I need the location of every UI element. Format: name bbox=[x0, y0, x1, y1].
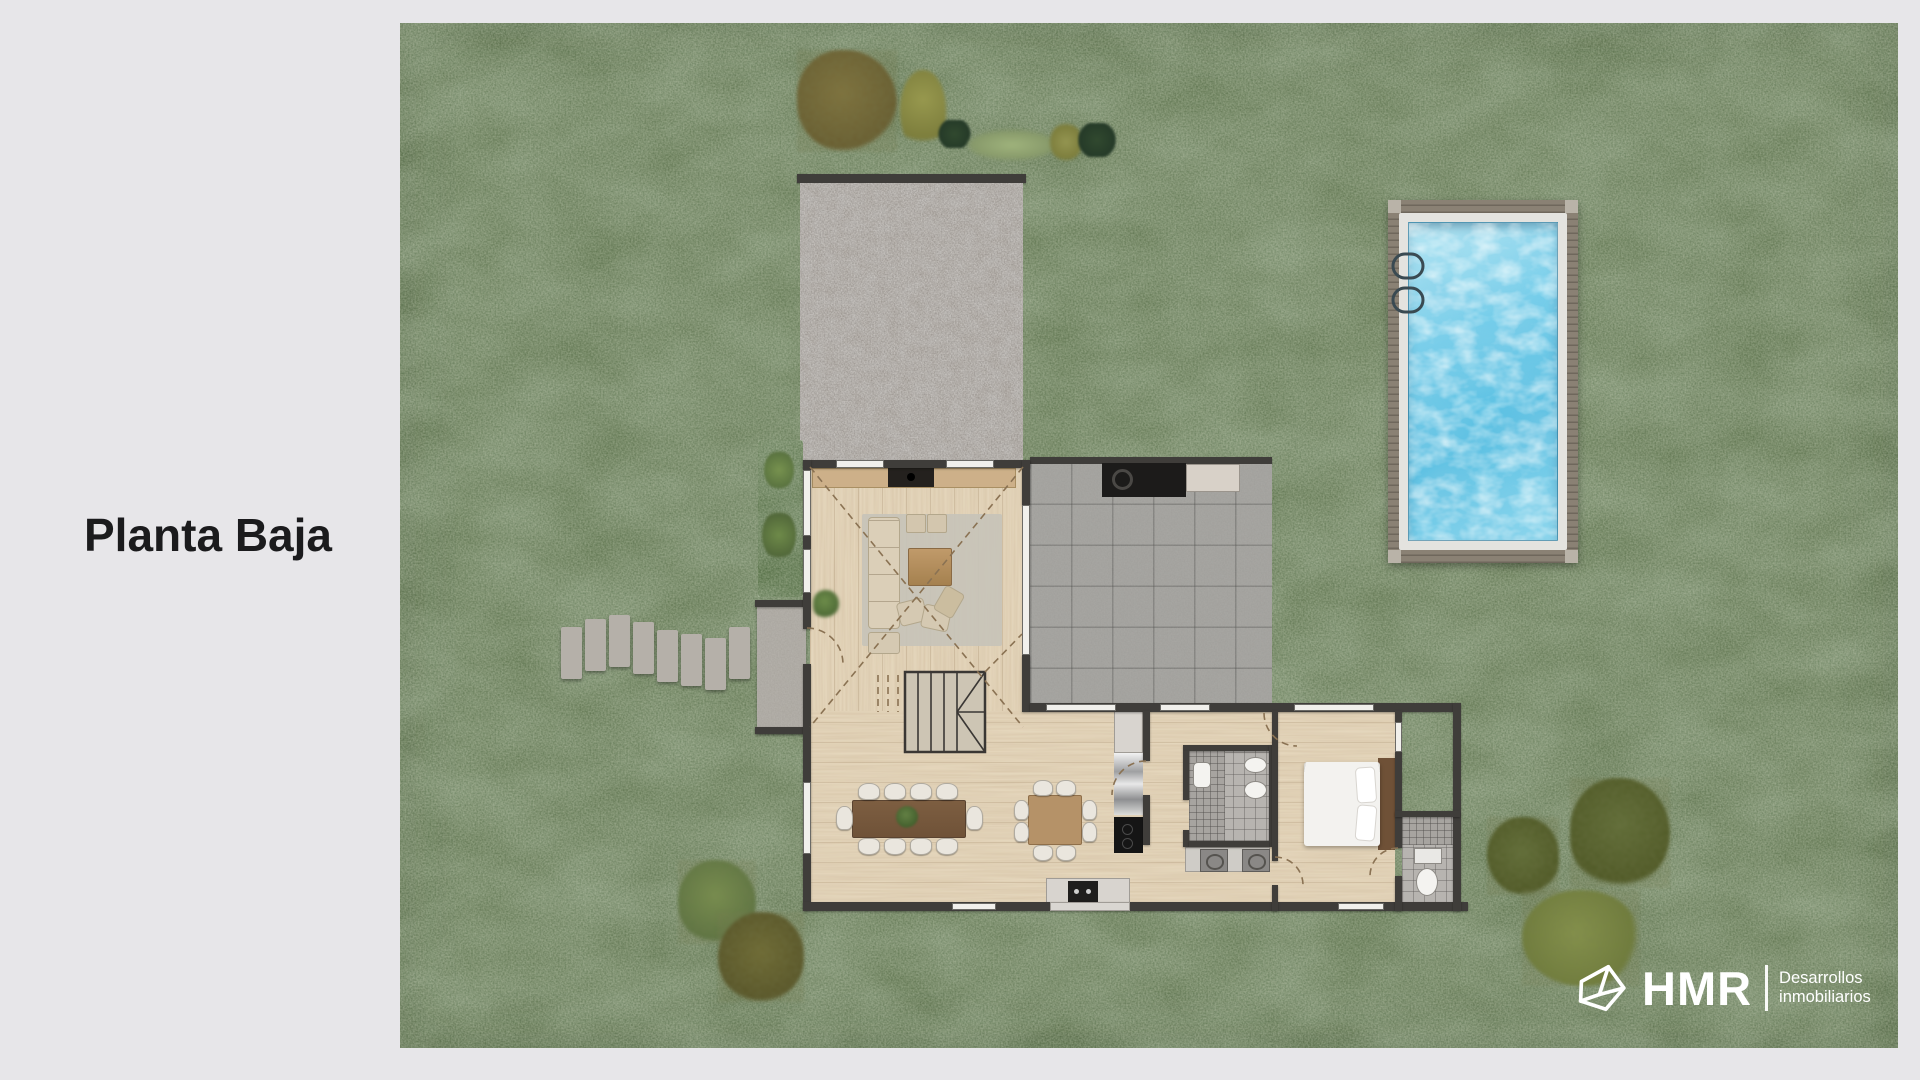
tree-dark-bottom-right-2 bbox=[1570, 778, 1670, 888]
stepping-stone bbox=[633, 622, 654, 674]
pool-deck-corner bbox=[1565, 200, 1578, 213]
bush-dark-top bbox=[938, 120, 971, 148]
leaf-texture bbox=[718, 912, 804, 1002]
leaf-texture bbox=[797, 50, 897, 152]
brand-tagline: Desarrollos inmobiliarios bbox=[1779, 969, 1871, 1007]
stepping-stone bbox=[681, 634, 702, 686]
tree-brown-bottom-left bbox=[718, 912, 804, 1002]
gravel-patio-top-wall bbox=[797, 174, 1026, 183]
stepping-stone bbox=[729, 627, 750, 679]
gravel-patio bbox=[800, 183, 1023, 460]
bush-light-row bbox=[968, 130, 1056, 160]
hmr-origami-mark-icon bbox=[1570, 960, 1632, 1016]
stepping-stone bbox=[561, 627, 582, 679]
stepping-stone bbox=[705, 638, 726, 690]
leaf-texture bbox=[1570, 778, 1670, 888]
stepping-stone bbox=[657, 630, 678, 682]
gravel-texture bbox=[800, 183, 1023, 460]
tree-olive-top bbox=[797, 50, 897, 152]
brand-lockup: HMR Desarrollos inmobiliarios bbox=[1570, 960, 1871, 1016]
page-title: Planta Baja bbox=[84, 508, 332, 562]
brand-tagline-line1: Desarrollos bbox=[1779, 969, 1871, 988]
stepping-stone bbox=[609, 615, 630, 667]
bush-dark-top-2 bbox=[1078, 123, 1116, 157]
pool-deck-corner bbox=[1565, 550, 1578, 563]
pool-deck-corner bbox=[1388, 200, 1401, 213]
brand-tagline-line2: inmobiliarios bbox=[1779, 988, 1871, 1007]
stepping-stone bbox=[585, 619, 606, 671]
floor-plan-page: Planta Baja bbox=[0, 0, 1920, 1080]
brand-name: HMR bbox=[1642, 961, 1752, 1016]
plan-annotations bbox=[760, 430, 1480, 930]
tree-dark-bottom-right-1 bbox=[1487, 817, 1559, 895]
leaf-texture bbox=[1487, 817, 1559, 895]
pool-ladder-icon bbox=[1390, 248, 1434, 332]
brand-divider bbox=[1765, 965, 1768, 1011]
